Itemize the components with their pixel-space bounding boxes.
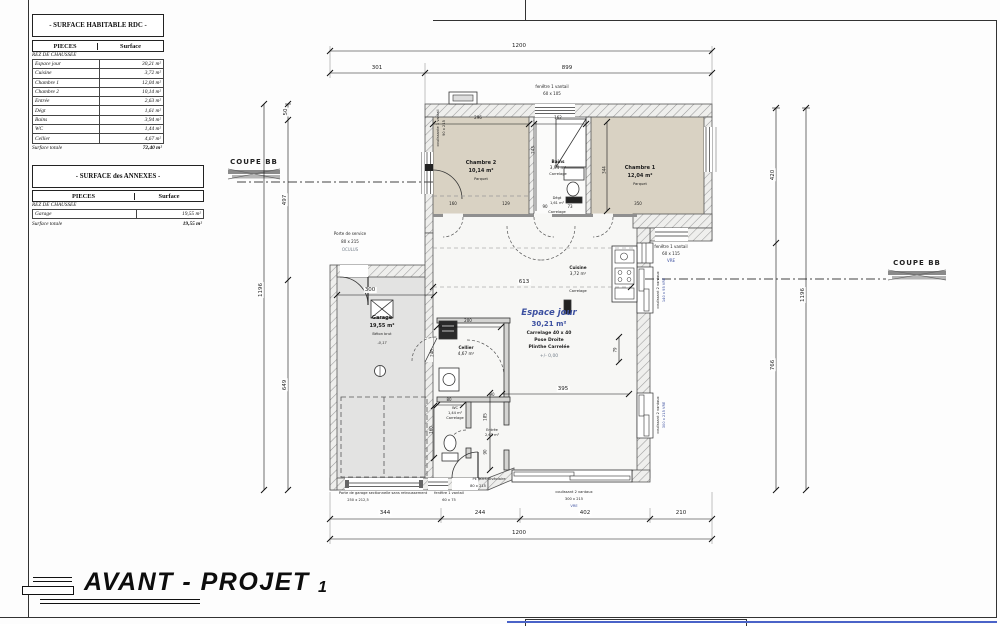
room-wc-finish: Carrelage xyxy=(446,416,463,420)
col-pieces: PIECES xyxy=(33,43,98,50)
col-surface: Surface xyxy=(98,43,163,50)
table-row: Dégt1,61 m² xyxy=(32,106,164,115)
dim-bottom-1: 344 xyxy=(379,510,392,516)
dim-corridor-73: 73 xyxy=(567,205,572,210)
label-porte-entree-1: PE BOIS Alvéolaire xyxy=(472,477,505,481)
drawing-sheet: 1200 301 899 344 244 402 210 1200 50 497… xyxy=(0,0,1000,624)
dim-cellier-width: 200 xyxy=(464,319,472,324)
dim-wc-160: 160 xyxy=(430,426,435,434)
room-espace-jour-line2: Pose Droite xyxy=(534,338,563,343)
title-underline xyxy=(40,599,200,604)
label-fenetre-115-2: 60 x 115 xyxy=(662,252,680,257)
label-coulissant-bas-1: coulissant 2 vantaux xyxy=(555,490,592,494)
title-deco-line-1 xyxy=(33,577,72,582)
dim-left-497: 497 xyxy=(282,194,288,207)
label-porte-service-3: OCULUS xyxy=(342,248,358,253)
section-rdc: REZ DE CHAUSSEE xyxy=(32,202,204,209)
room-espace-jour-area: 30,21 m² xyxy=(532,320,567,328)
dim-chambre2-width: 296 xyxy=(474,116,482,121)
table-row: Chambre 210,14 m² xyxy=(32,88,164,97)
dim-bottom-total: 1200 xyxy=(511,530,527,536)
label-porte-garage-1: Porte de garage sectionnelle sans retrou… xyxy=(339,491,427,495)
room-cellier-area: 4,67 m² xyxy=(458,352,474,357)
label-porte-garage-2: 250 x 212,5 xyxy=(347,498,369,502)
dim-bottom-4: 210 xyxy=(675,510,688,516)
room-garage-name: Garage xyxy=(372,316,392,322)
room-bains-finish: Carrelage xyxy=(549,172,566,176)
label-coulissant-300-droite-2: 300 x 215 VRE xyxy=(662,402,666,429)
label-fenetre-top-2: 60 x 105 xyxy=(543,92,561,97)
label-coulissant-bas-3: VRE xyxy=(570,504,577,508)
dim-right-420: 420 xyxy=(770,169,776,182)
bottom-blue-bar xyxy=(507,621,997,623)
room-degt-name: Dégt xyxy=(553,196,562,200)
room-entree-area: 2,63 m² xyxy=(485,433,499,437)
room-cuisine-area: 3,72 m² xyxy=(570,272,586,277)
project-number: 1 xyxy=(318,579,327,597)
room-entree-name: Entrée xyxy=(486,428,498,432)
table-row: Bains3,94 m² xyxy=(32,116,164,125)
room-cuisine-finish: Carrelage xyxy=(569,289,586,293)
room-chambre1-finish: Parquet xyxy=(633,182,647,186)
room-chambre1-area: 12,04 m² xyxy=(628,174,653,180)
table-surface-annexes: - SURFACE des ANNEXES - PIECES Surface R… xyxy=(32,165,204,227)
dim-entree-90: 90 xyxy=(489,393,494,398)
table-annexes-total: Surface totale 19,55 m² xyxy=(32,219,204,227)
table-habitable-total: Surface totale 72,40 m² xyxy=(32,144,164,152)
label-coulissant-140-1: coulissant 2 vantaux xyxy=(656,271,660,308)
room-chambre2-finish: Parquet xyxy=(474,177,488,181)
dim-garage-width: 300 xyxy=(364,287,377,293)
room-wc-name: WC xyxy=(452,406,458,410)
room-chambre2-area: 10,14 m² xyxy=(469,169,494,175)
dim-wc-80: 80 xyxy=(446,398,451,403)
frame-top-tick xyxy=(525,0,526,20)
room-espace-jour-line1: Carrelage 40 x 40 xyxy=(527,331,572,336)
section-rdc: REZ DE CHAUSSEE xyxy=(32,52,164,59)
table-annexes-title: - SURFACE des ANNEXES - xyxy=(32,165,204,188)
dim-corridor-160: 160 xyxy=(449,202,457,207)
col-pieces: PIECES xyxy=(33,193,135,200)
water-heater-icon xyxy=(439,321,457,339)
room-bains-area: 3,94 m² xyxy=(550,166,566,171)
coupe-bb-left-label: COUPE BB xyxy=(230,158,278,166)
frame-top xyxy=(433,20,996,21)
dim-left-total: 1196 xyxy=(258,282,264,298)
label-fenetre-gauche-2: 90 x 215 xyxy=(442,120,446,136)
dim-corridor-129: 129 xyxy=(502,202,510,207)
label-porte-service-2: 80 x 215 xyxy=(341,240,359,245)
dim-bains-depth: 243 xyxy=(532,146,537,154)
dim-kitchen-79: 79 xyxy=(614,347,619,352)
toilet-icon xyxy=(444,435,456,451)
room-espace-jour-level: +/- 0,00 xyxy=(540,354,558,359)
frame-right xyxy=(996,20,997,617)
frame-bottom xyxy=(0,617,997,618)
room-degt-finish: Carrelage xyxy=(548,210,565,214)
label-coulissant-300-droite-1: coulissant 2 vantaux xyxy=(656,396,660,433)
table-row: Cuisine3,72 m² xyxy=(32,69,164,78)
col-surface: Surface xyxy=(135,193,203,200)
title-deco-line-2 xyxy=(22,586,74,595)
dim-top-left: 301 xyxy=(371,65,384,71)
dim-top-right: 899 xyxy=(561,65,574,71)
label-porte-entree-2: 80 x 215 xyxy=(470,484,486,488)
dim-entree-90b: 90 xyxy=(484,449,489,454)
dim-left-649: 649 xyxy=(282,379,288,392)
table-habitable-header: PIECES Surface xyxy=(32,40,164,52)
coupe-bb-right-label: COUPE BB xyxy=(893,259,941,267)
label-porte-service-1: Porte de service xyxy=(334,232,366,237)
table-row: Espace jour30,21 m² xyxy=(32,59,164,69)
room-garage-area: 19,55 m² xyxy=(370,324,395,330)
dim-left-50: 50 xyxy=(283,108,289,117)
dim-top-total: 1200 xyxy=(511,43,527,49)
room-espace-jour-name: Espace jour xyxy=(521,309,576,319)
label-fenetre-top-1: fenêtre 1 vantail xyxy=(535,85,568,90)
room-garage-finish: Béton brut xyxy=(372,332,391,336)
label-coulissant-140-2: 140 x 95 VRE xyxy=(662,278,666,302)
room-chambre1-name: Chambre 1 xyxy=(625,166,655,172)
label-fenetre-115-1: fenêtre 1 vantail xyxy=(654,245,687,250)
dim-entree-185: 185 xyxy=(484,413,489,421)
room-espace-jour-line3: Plinthe Carrelée xyxy=(528,345,569,350)
dim-espace-jour-width: 613 xyxy=(518,279,531,285)
label-fenetre-75-1: fenêtre 1 vantail xyxy=(434,491,464,495)
label-fenetre-75-2: 60 x 75 xyxy=(442,498,456,502)
table-row: Cellier4,67 m² xyxy=(32,134,164,143)
dim-espace-395: 395 xyxy=(557,386,570,392)
dim-right-766: 766 xyxy=(770,359,776,372)
project-title: AVANT - PROJET xyxy=(84,568,310,597)
label-fenetre-115-3: VRE xyxy=(667,259,675,264)
dim-wall-246: 246 xyxy=(431,349,436,357)
table-row: WC1,44 m² xyxy=(32,125,164,134)
table-habitable-title: - SURFACE HABITABLE RDC - xyxy=(32,14,164,37)
room-garage-level: -0,17 xyxy=(377,341,386,345)
room-chambre2-name: Chambre 2 xyxy=(466,161,496,167)
dim-bottom-3: 402 xyxy=(579,510,592,516)
frame-left xyxy=(28,0,29,617)
table-row: Chambre 112,04 m² xyxy=(32,79,164,88)
label-coulissant-bas-2: 300 x 215 xyxy=(565,497,583,501)
dim-right-total: 1196 xyxy=(800,287,806,303)
table-surface-habitable: - SURFACE HABITABLE RDC - PIECES Surface… xyxy=(32,14,164,151)
dim-chambre1-width: 350 xyxy=(634,202,642,207)
table-row: Entrée2,63 m² xyxy=(32,97,164,106)
table-annexes-header: PIECES Surface xyxy=(32,190,204,202)
table-row: Garage19,55 m² xyxy=(32,209,204,219)
dim-chambre1-depth: 344 xyxy=(603,166,608,174)
room-wc-area: 1,44 m² xyxy=(448,411,462,415)
label-fenetre-gauche-1: coulissante 1 vantail xyxy=(436,109,440,146)
dim-corridor-90: 90 xyxy=(542,205,547,210)
room-degt-area: 1,61 m² xyxy=(550,201,564,205)
dim-bains-width: 162 xyxy=(554,116,562,121)
dim-bottom-2: 244 xyxy=(474,510,487,516)
